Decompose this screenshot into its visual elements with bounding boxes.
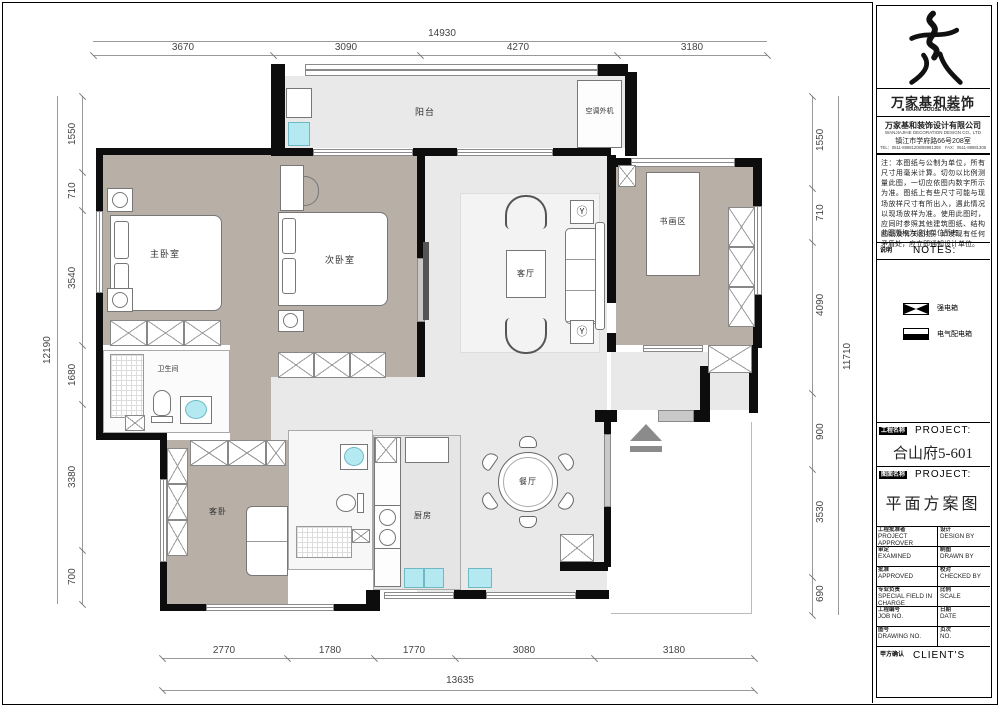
sink xyxy=(344,447,364,466)
washer xyxy=(352,529,370,543)
room-label-guest: 客卧 xyxy=(196,508,240,516)
wardrobe xyxy=(278,352,314,378)
entry-arrow-bar xyxy=(630,446,662,452)
window xyxy=(631,158,735,167)
notes-header-cn: 说明 xyxy=(880,248,892,254)
wardrobe xyxy=(110,320,147,346)
room-label-living: 客厅 xyxy=(506,270,546,278)
client-label-en: CLIENT'S xyxy=(913,651,965,661)
fan-coil-icon: Ⓨ xyxy=(570,320,594,344)
wall xyxy=(598,64,628,76)
tv-panel xyxy=(423,242,429,320)
wall xyxy=(753,163,762,208)
wall xyxy=(607,333,616,352)
wall xyxy=(625,72,637,156)
wardrobe xyxy=(167,484,188,520)
notes-copyright: 此图版权为设计单位所有。 xyxy=(881,228,985,238)
cell-scale: 比例SCALE xyxy=(938,586,990,606)
dim-seg: 3530 xyxy=(816,484,826,540)
dim-seg: 4090 xyxy=(816,277,826,333)
fridge xyxy=(405,437,449,463)
dim-line xyxy=(838,96,839,615)
dim-line xyxy=(162,658,754,659)
kitchen-cabinet xyxy=(375,437,397,463)
dim-seg: 700 xyxy=(68,553,78,601)
dim-seg: 4270 xyxy=(490,43,546,53)
wall xyxy=(96,148,103,216)
sink xyxy=(185,400,207,419)
wall xyxy=(271,64,285,156)
wall xyxy=(96,148,274,155)
entry-closet xyxy=(560,534,594,562)
wardrobe xyxy=(314,352,350,378)
dim-total-left: 12190 xyxy=(43,317,53,383)
window xyxy=(160,479,167,562)
room-label-ac: 空调外机 xyxy=(577,108,622,115)
drawing-name-value: 平面方案图 xyxy=(877,490,989,514)
dim-line xyxy=(812,96,813,615)
dim-seg: 690 xyxy=(816,570,826,618)
window xyxy=(384,592,454,599)
toilet xyxy=(153,390,171,416)
dim-seg: 710 xyxy=(68,167,78,215)
toilet-tank xyxy=(357,493,364,513)
room-label-bath: 卫生间 xyxy=(145,366,191,373)
wardrobe xyxy=(190,440,228,466)
dim-seg: 3540 xyxy=(68,250,78,306)
dim-total-bottom: 13635 xyxy=(428,676,492,686)
wall xyxy=(160,604,208,611)
company-name-en: WANJIAJIHE DECORATION DESIGN CO., LTD xyxy=(877,130,989,135)
wall xyxy=(607,155,616,303)
wall xyxy=(96,290,103,440)
wardrobe xyxy=(266,440,286,466)
wardrobe xyxy=(728,287,755,327)
wall xyxy=(96,433,167,440)
project-name-value: 合山府5-601 xyxy=(877,442,989,463)
cell-special-field: 专业负责SPECIAL FIELD IN CHARGE xyxy=(876,586,938,606)
wardrobe xyxy=(728,247,755,287)
dim-line xyxy=(93,55,767,56)
dim-seg: 3380 xyxy=(68,449,78,505)
room-label-kitchen: 厨房 xyxy=(400,512,446,520)
title-block: 万家基和装饰 ■ WARM GOOSE HOUSE ■ 万家基和装饰设计有限公司… xyxy=(872,2,997,703)
floor-balcony xyxy=(285,76,625,148)
room-label-dining: 餐厅 xyxy=(505,478,551,486)
dim-total-right: 11710 xyxy=(843,323,853,389)
cell-approved: 批准APPROVED xyxy=(876,566,938,586)
window xyxy=(206,604,334,611)
lamp xyxy=(283,313,298,328)
wardrobe xyxy=(184,320,221,346)
client-label-cn: 甲方确认 xyxy=(880,652,904,658)
cabinet xyxy=(618,165,636,187)
dim-line xyxy=(93,41,767,42)
project-label-cn: 工程名称 xyxy=(879,427,907,435)
dim-seg: 1770 xyxy=(386,646,442,656)
lamp xyxy=(112,292,128,308)
cell-design-by: 设计DESIGN BY xyxy=(938,526,990,546)
dim-seg: 3090 xyxy=(318,43,374,53)
dim-seg: 3670 xyxy=(155,43,211,53)
washer xyxy=(125,415,145,431)
dim-seg: 1680 xyxy=(68,347,78,403)
wall xyxy=(595,410,617,422)
wall xyxy=(692,410,710,422)
wardrobe xyxy=(728,207,755,247)
dim-line xyxy=(162,690,754,691)
dim-seg: 710 xyxy=(816,189,826,237)
wall xyxy=(160,433,167,481)
pillow xyxy=(282,258,296,294)
cell-examined: 审定EXAMINED xyxy=(876,546,938,566)
sliding-door xyxy=(313,149,413,156)
brand-tagline: ■ WARM GOOSE HOUSE ■ xyxy=(877,107,989,113)
dim-seg: 1780 xyxy=(302,646,358,656)
legend-strong-electric-label: 强电箱 xyxy=(937,305,958,312)
cell-job-no: 工程编号JOB NO. xyxy=(876,606,938,626)
burner xyxy=(379,509,396,526)
cell-project-approver: 工程批准者PROJECT APPROVER xyxy=(876,526,938,546)
window xyxy=(96,211,103,293)
wall xyxy=(366,590,380,611)
cell-drawn-by: 制图DRAWN BY xyxy=(938,546,990,566)
lamp xyxy=(112,192,128,208)
washing-machine xyxy=(288,122,310,146)
legend-distribution-box-label: 电气配电箱 xyxy=(937,331,972,338)
dim-line xyxy=(57,96,58,604)
wall xyxy=(576,590,609,599)
dim-seg: 1550 xyxy=(68,106,78,162)
drawing-label-cn: 图面名称 xyxy=(879,471,907,479)
wardrobe xyxy=(167,520,188,556)
kitchen-sink xyxy=(404,568,444,588)
dining-chair xyxy=(519,436,537,448)
wall xyxy=(560,562,608,571)
dim-seg: 3080 xyxy=(496,646,552,656)
wardrobe xyxy=(228,440,266,466)
wall xyxy=(604,505,611,567)
cell-date: 日期DATE xyxy=(938,606,990,626)
cell-page-no: 页次NO. xyxy=(938,626,990,646)
entry-threshold xyxy=(658,410,694,422)
legend-distribution-box-symbol xyxy=(903,328,929,340)
room-label-second: 次卧室 xyxy=(300,256,380,265)
sliding-door xyxy=(643,345,703,352)
toilet-tank xyxy=(151,416,173,423)
toilet xyxy=(336,494,356,512)
entry-arrow-icon xyxy=(630,424,662,441)
wall xyxy=(285,148,313,156)
closet xyxy=(708,345,752,373)
wall xyxy=(553,148,611,156)
wardrobe xyxy=(147,320,184,346)
project-label-en: PROJECT: xyxy=(915,426,971,436)
notes-header-en: NOTES: xyxy=(913,246,956,256)
shower-area xyxy=(296,526,352,558)
wall xyxy=(417,320,425,377)
sliding-door xyxy=(457,149,553,156)
water-heater xyxy=(468,568,492,588)
wardrobe xyxy=(167,448,188,484)
cell-drawing-no: 图号DRAWING NO. xyxy=(876,626,938,646)
fan-coil-icon: Ⓨ xyxy=(570,200,594,224)
room-label-study: 书画区 xyxy=(646,218,700,226)
armchair xyxy=(505,195,547,229)
legend-strong-electric-symbol xyxy=(903,302,929,314)
wall xyxy=(454,590,486,599)
drawing-label-en: PROJECT: xyxy=(915,470,971,480)
guest-bed xyxy=(246,506,288,576)
dresser xyxy=(280,165,304,211)
sofa-back xyxy=(595,222,605,330)
wardrobe xyxy=(350,352,386,378)
room-label-balcony: 阳台 xyxy=(400,108,450,117)
company-phone: TEL：0511-88981208/88981308 FAX：0511-8898… xyxy=(877,145,989,151)
pillow xyxy=(282,218,296,254)
dim-total-top: 14930 xyxy=(410,29,474,39)
company-logo xyxy=(897,10,969,86)
window xyxy=(305,64,598,76)
dim-seg: 2770 xyxy=(196,646,252,656)
dim-seg: 3180 xyxy=(664,43,720,53)
dim-seg: 1550 xyxy=(816,112,826,168)
floor-plan-sheet: 空调外机 阳台 主卧室 次卧室 Ⓨ Ⓨ 客厅 书画区 卫生间 xyxy=(0,0,1000,707)
room-label-master: 主卧室 xyxy=(125,250,205,259)
dim-seg: 900 xyxy=(816,406,826,458)
window-sill xyxy=(604,434,611,507)
window xyxy=(486,592,576,599)
floor-hallway xyxy=(230,155,274,440)
balcony-cabinet xyxy=(286,88,312,118)
shower-area xyxy=(110,354,144,418)
cell-checked-by: 校对CHECKED BY xyxy=(938,566,990,586)
burner xyxy=(379,529,396,546)
dim-seg: 3180 xyxy=(646,646,702,656)
